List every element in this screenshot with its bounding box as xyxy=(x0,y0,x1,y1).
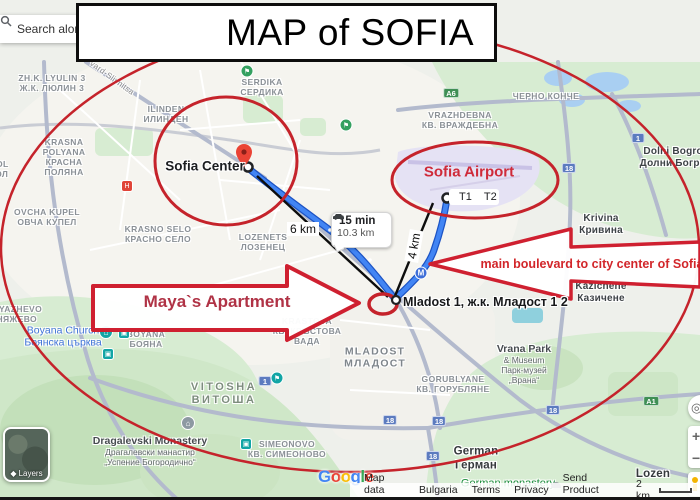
mladost-marker-label: Mladost 1, ж.к. Младост 1 2 xyxy=(403,295,568,309)
bottom-black-strip xyxy=(0,497,700,500)
layers-icon: ◆ xyxy=(10,469,16,478)
google-logo-letter: o xyxy=(331,467,341,486)
apartment-arrow-label: Maya`s Apartment xyxy=(144,292,291,312)
boulevard-arrow-label: main boulevard to city center of Sofia xyxy=(481,257,700,271)
title-banner: MAP of SOFIA xyxy=(76,3,497,62)
zoom-control[interactable]: + − xyxy=(688,426,700,468)
scale-bar xyxy=(659,488,692,493)
my-location-icon: ◎ xyxy=(691,400,700,416)
metro-station-icon[interactable]: M xyxy=(415,267,428,280)
route-distance: 10.3 km xyxy=(336,227,387,239)
terminal-labels: T1 T2 xyxy=(449,189,499,205)
terminal-2-label: T2 xyxy=(484,191,497,203)
distance-label-6km: 6 km xyxy=(287,222,319,236)
terminal-1-label: T1 xyxy=(459,191,472,203)
map-of-sofia-screenshot: ZH.K. LYULIN 3Ж.К. ЛЮЛИН 3vard-Slivnitsa… xyxy=(0,0,700,500)
zoom-out-button[interactable]: − xyxy=(692,450,700,466)
link-terms[interactable]: Terms xyxy=(472,484,501,496)
attribution-bar: Map data ©2024 Bulgaria Terms Privacy Se… xyxy=(350,483,700,497)
sofia-center-label: Sofia Center xyxy=(165,159,245,174)
layers-button[interactable]: ◆ Layers xyxy=(3,427,50,482)
bubble-pointer xyxy=(334,242,345,253)
distance-label-4km: 4 km xyxy=(404,229,423,263)
route-info-bubble[interactable]: 15 min 10.3 km xyxy=(331,212,392,248)
page-title: MAP of SOFIA xyxy=(226,12,474,54)
sofia-airport-label: Sofia Airport xyxy=(424,164,514,181)
annotation-text-layer: Sofia Center Sofia Airport T1 T2 Mladost… xyxy=(0,0,700,500)
link-bulgaria[interactable]: Bulgaria xyxy=(419,484,458,496)
layers-label: Layers xyxy=(19,469,43,478)
link-privacy[interactable]: Privacy xyxy=(514,484,548,496)
zoom-in-button[interactable]: + xyxy=(692,428,700,444)
google-logo-letter: G xyxy=(318,467,331,486)
